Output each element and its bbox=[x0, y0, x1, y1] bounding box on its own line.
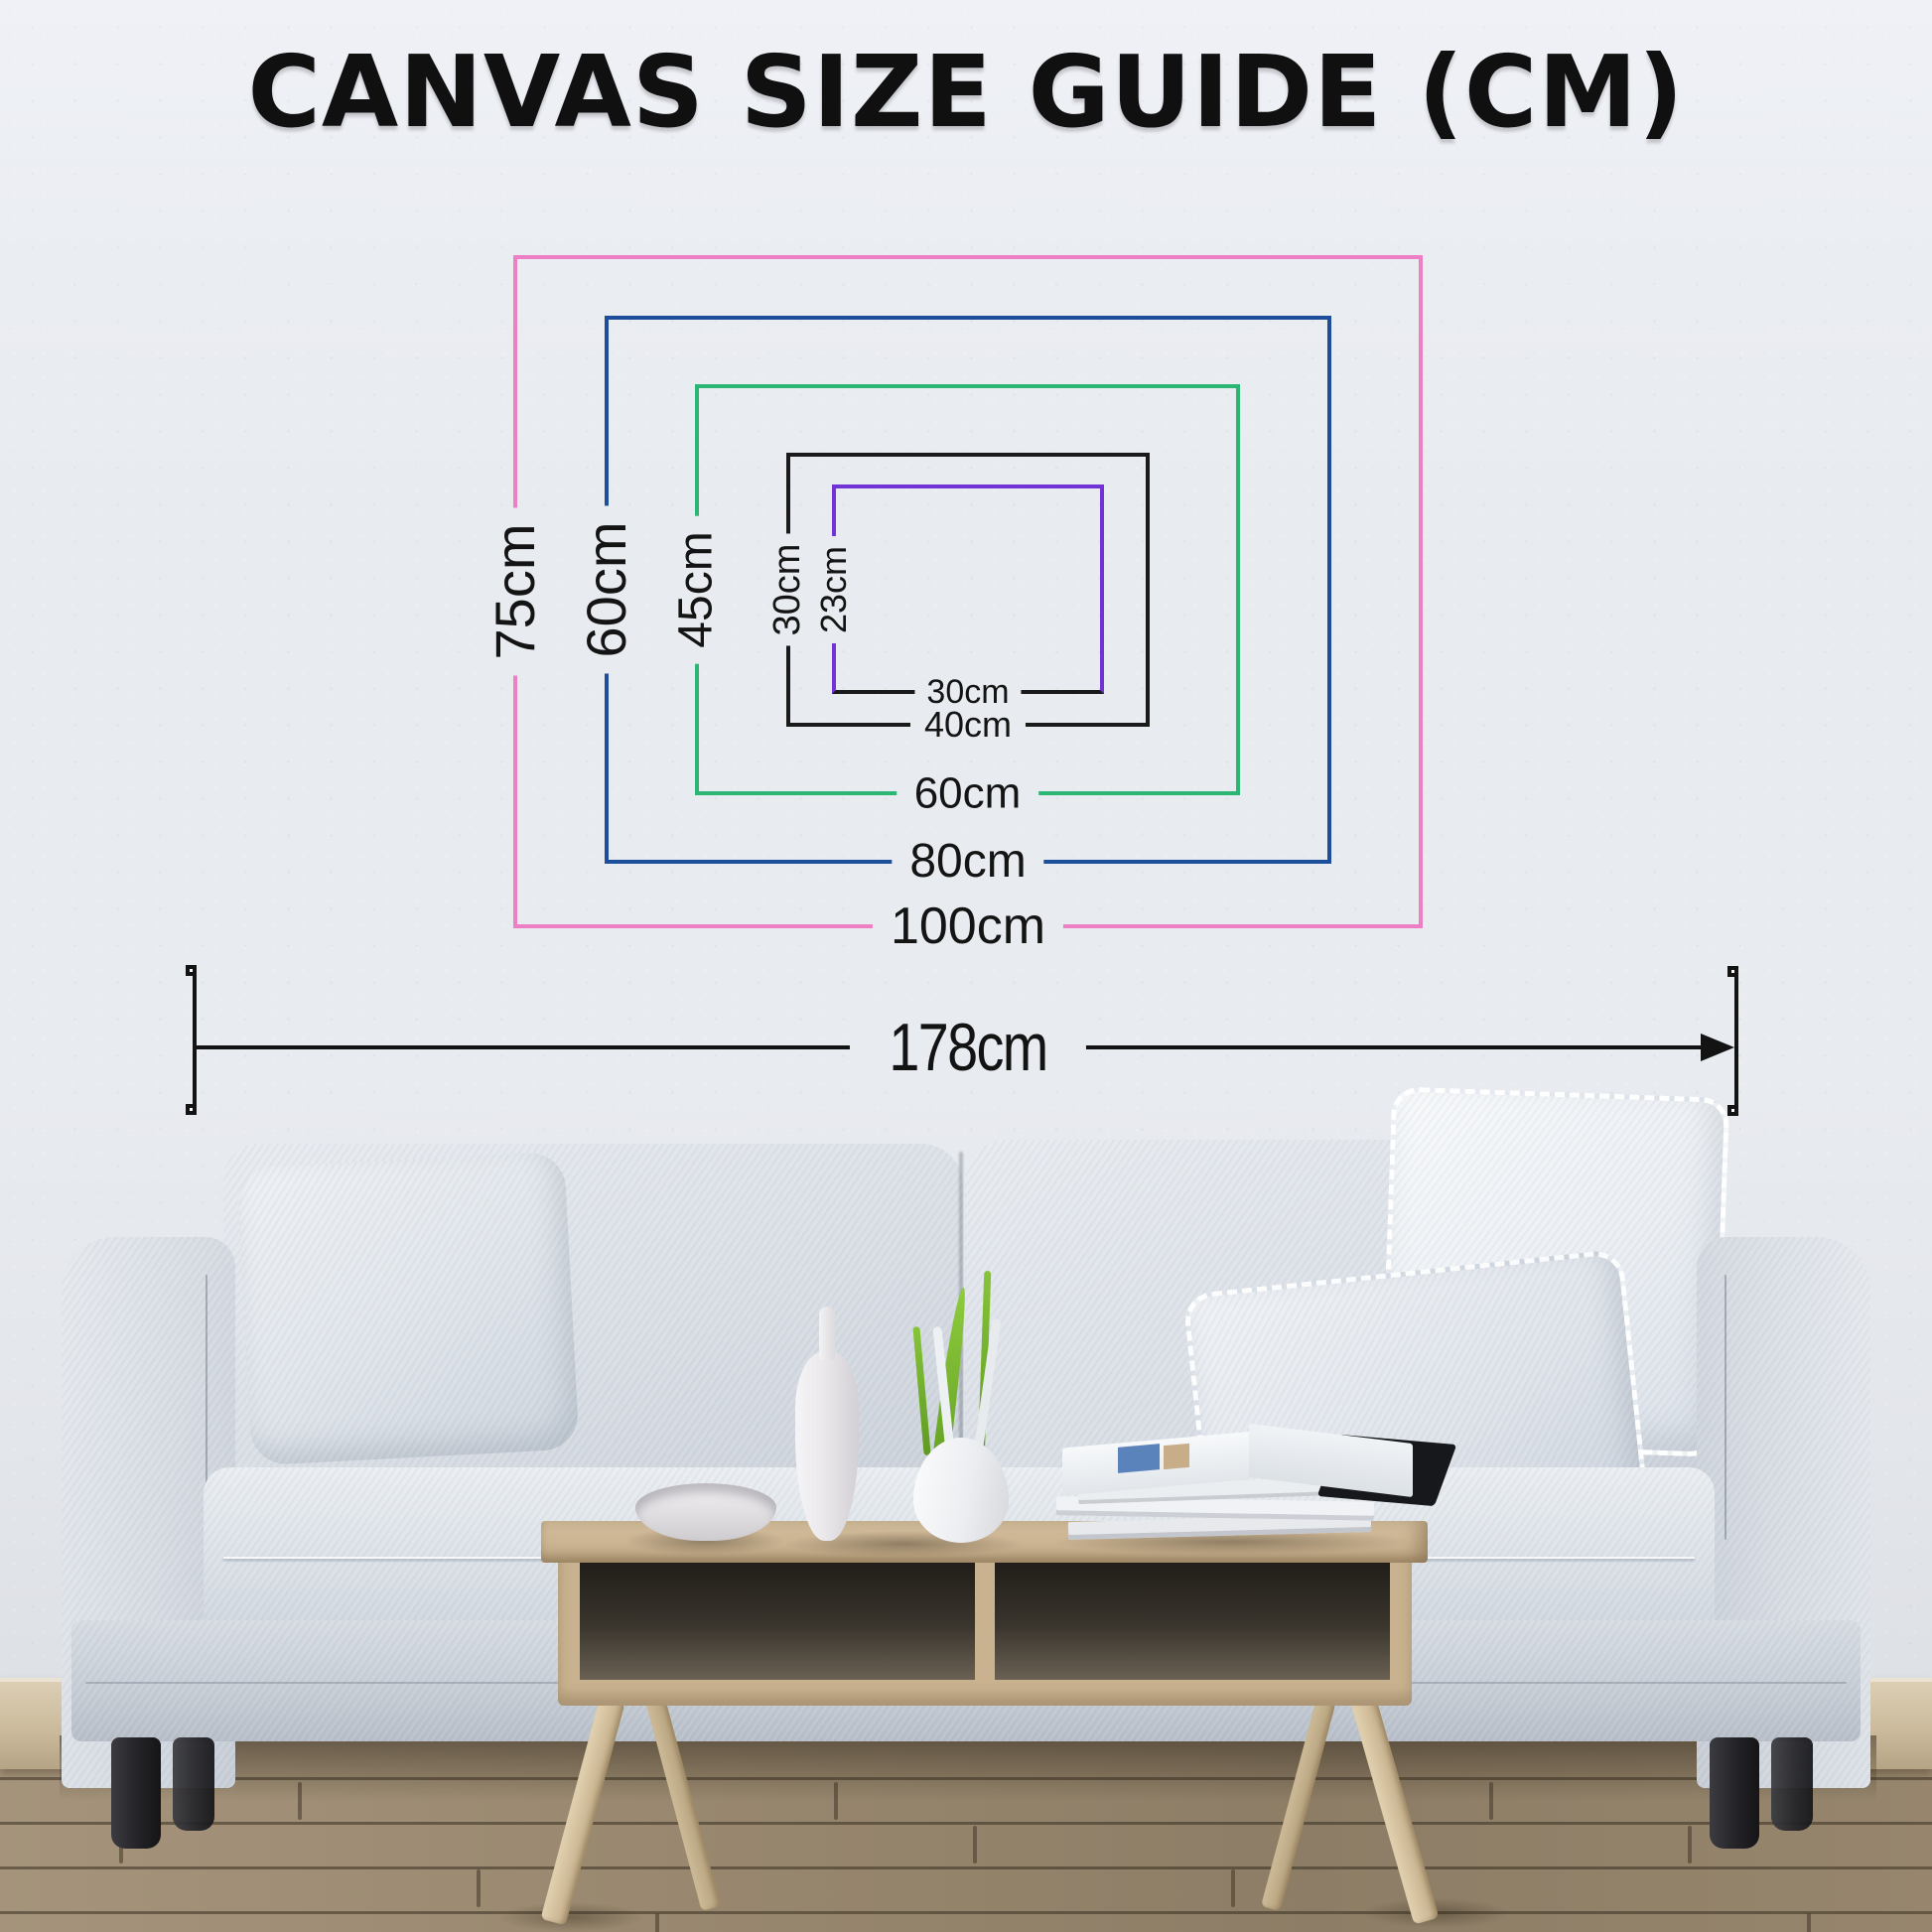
arrow-right-icon bbox=[1701, 1034, 1734, 1061]
wall-width-measurement: 178cm bbox=[0, 0, 1932, 1932]
measure-handle-icon bbox=[186, 965, 197, 976]
measure-end-line-left bbox=[193, 974, 197, 1113]
canvas-size-guide-infographic: CANVAS SIZE GUIDE (CM) 100cm 75cm 80cm 6… bbox=[0, 0, 1932, 1932]
measure-handle-icon bbox=[1727, 1105, 1738, 1116]
measure-label: 178cm bbox=[850, 1007, 1086, 1088]
measure-handle-icon bbox=[1727, 966, 1738, 977]
measure-handle-icon bbox=[186, 1104, 197, 1115]
measure-end-line-right bbox=[1734, 975, 1738, 1114]
